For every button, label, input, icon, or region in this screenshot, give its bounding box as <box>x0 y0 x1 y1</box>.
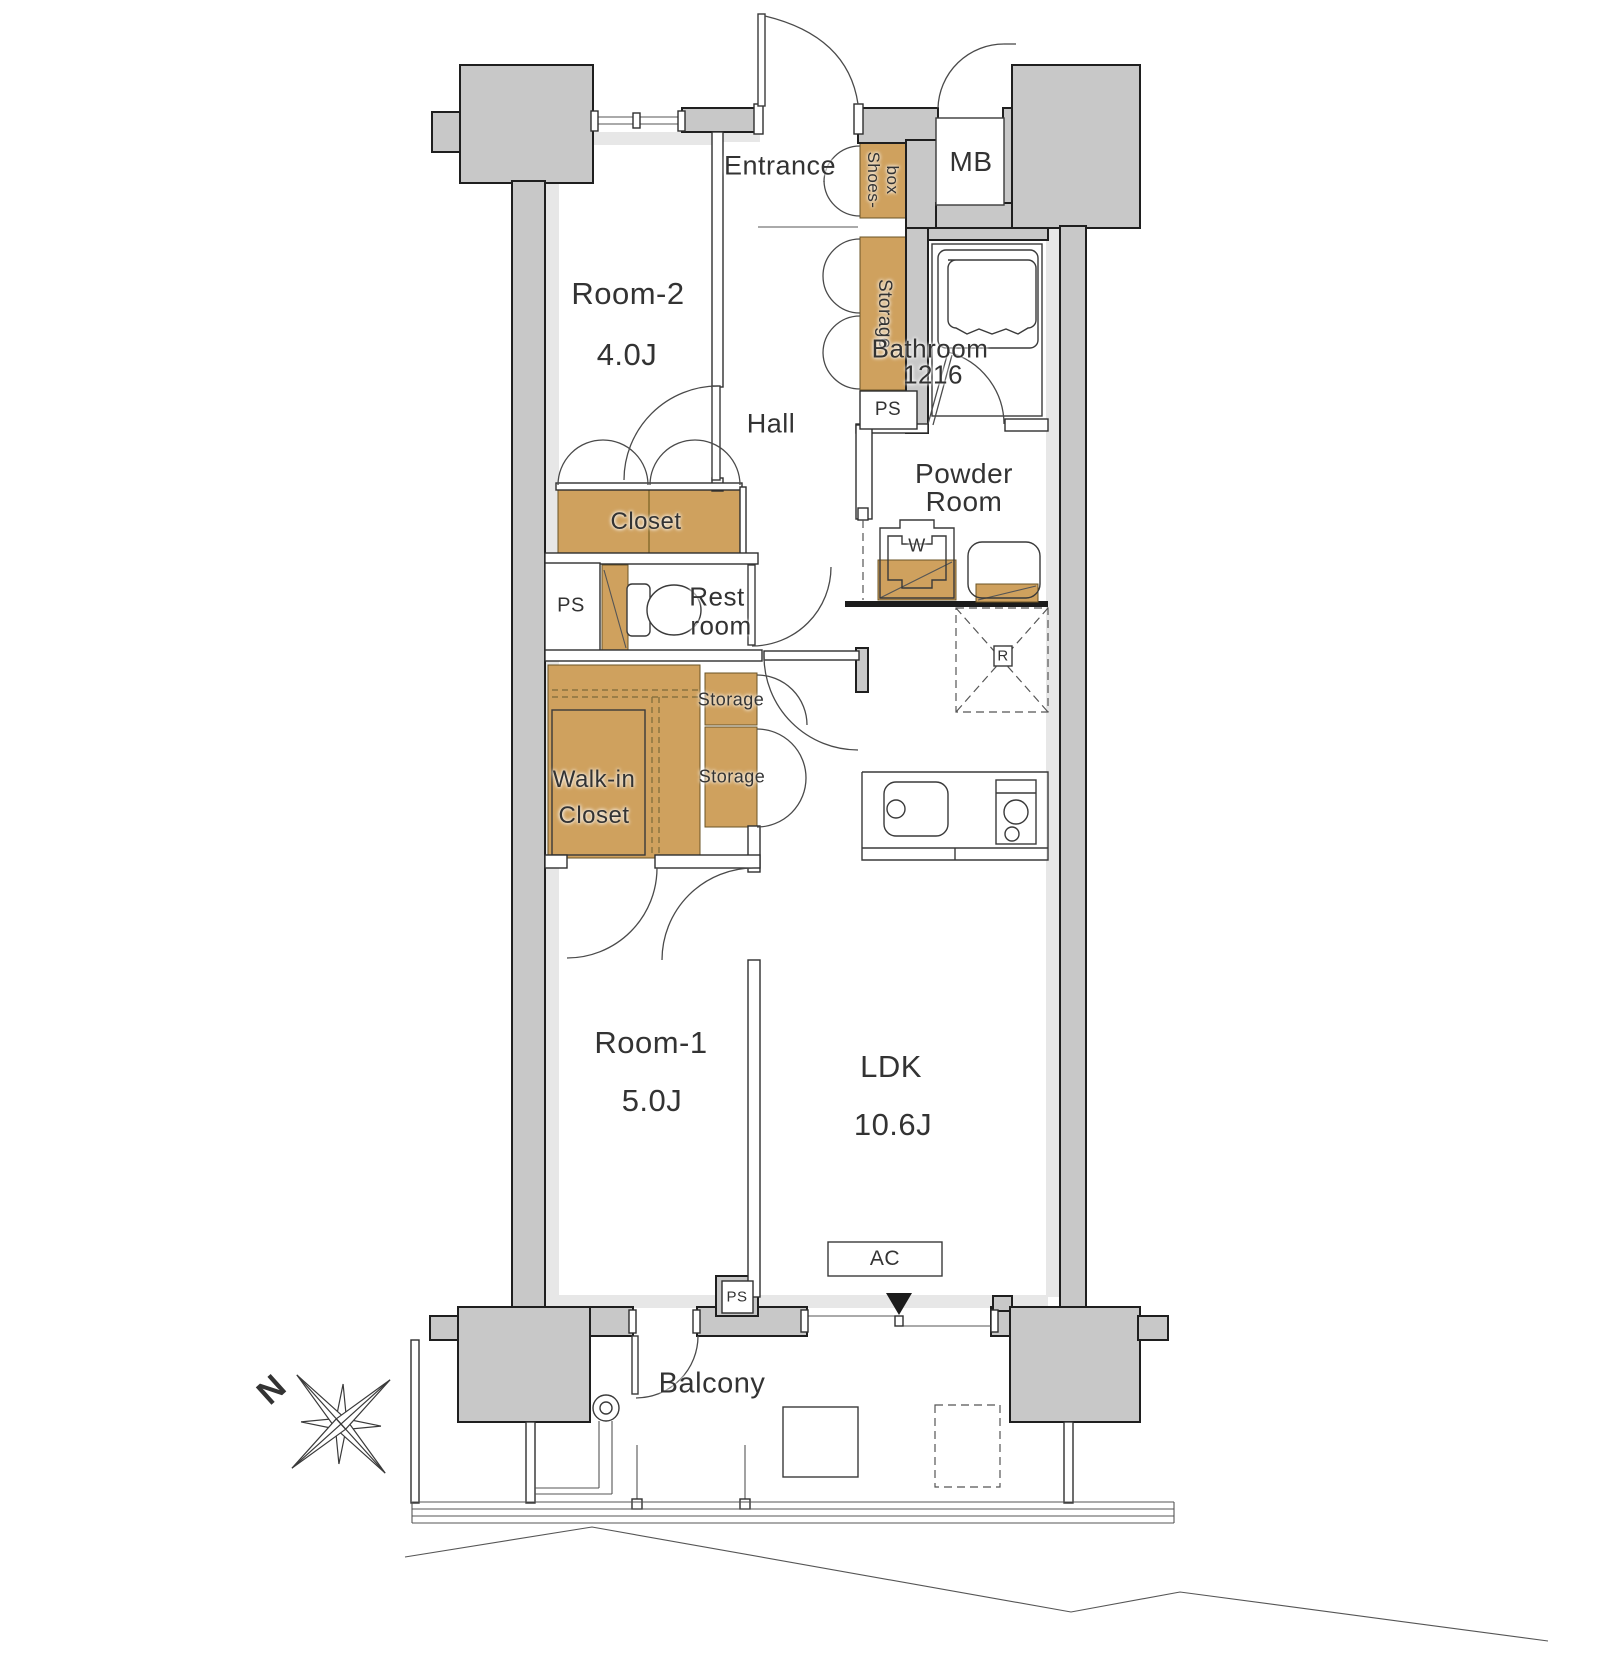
floor-plan-drawing <box>0 0 1600 1660</box>
wic-label-2: Closet <box>558 802 629 830</box>
wall-entry-mb <box>906 140 938 230</box>
pillar-topleft-tab <box>432 112 462 152</box>
wall-left <box>512 181 545 1309</box>
wall-restroom-wic <box>545 650 762 661</box>
wic-label-1: Walk-in <box>553 766 636 794</box>
closet-door-line <box>556 483 742 490</box>
closet-label: Closet <box>610 508 681 536</box>
ldk-door-leaf <box>764 651 859 660</box>
wall-top-a <box>682 108 760 132</box>
pillar-topright <box>1012 65 1140 228</box>
room2-door-leaf <box>712 386 720 480</box>
wall-hall-powder <box>856 425 872 519</box>
ac-label: AC <box>870 1247 900 1271</box>
shoes-box-label-2: box <box>882 166 902 195</box>
wall-room1-ldk <box>748 960 760 1297</box>
entrance-label: Entrance <box>724 151 836 182</box>
room1-label: Room-1 <box>594 1025 707 1061</box>
entrance-door-leaf <box>758 14 765 106</box>
room1-size: 5.0J <box>622 1083 683 1119</box>
compass-icon <box>248 1331 434 1517</box>
pillar-topleft <box>460 65 593 183</box>
balcony-railing <box>412 1502 1174 1523</box>
washer-label: W <box>908 536 926 557</box>
balcony-box-solid <box>783 1407 858 1477</box>
entrance-door-arc <box>765 16 858 104</box>
wall-room2-hall <box>712 132 723 387</box>
balcony-label: Balcony <box>659 1368 766 1401</box>
pillar-bottomleft-arm <box>430 1316 460 1340</box>
balcony-box-dashed <box>935 1405 1000 1487</box>
room2-size: 4.0J <box>597 337 658 373</box>
mb-label: MB <box>950 146 993 178</box>
room2-window <box>591 111 598 131</box>
ldk-size: 10.6J <box>854 1107 932 1143</box>
storage-b-label: Storage <box>699 767 766 788</box>
ps-hall-label: PS <box>875 399 901 421</box>
pillar-bottomright <box>1010 1307 1140 1422</box>
balcony-side-panel <box>411 1340 419 1503</box>
ground-line <box>405 1527 1548 1641</box>
bathroom-size: 1216 <box>903 360 963 391</box>
room2-label: Room-2 <box>571 276 684 312</box>
pillar-bottomright-arm <box>1138 1316 1168 1340</box>
refrigerator-label: R <box>997 648 1008 665</box>
ldk-window <box>801 1310 808 1332</box>
floor-plan: Entrance Shoes- box MB Storage Bathroom … <box>0 0 1600 1660</box>
storage-a-label: Storage <box>698 690 765 711</box>
restroom-label-1: Rest <box>689 582 744 613</box>
shoes-box-label-1: Shoes- <box>863 152 883 209</box>
wall-top-b <box>858 108 938 143</box>
hall-label: Hall <box>747 409 796 440</box>
wall-mb-bottom <box>936 203 1016 230</box>
wall-right <box>1060 226 1086 1309</box>
restroom-label-2: room <box>690 611 751 642</box>
ldk-label: LDK <box>860 1049 922 1085</box>
wall-bath-powder <box>1005 419 1048 431</box>
mb-door-arc <box>938 44 1004 108</box>
ps-left-label: PS <box>557 595 585 618</box>
wall-wic-room1 <box>655 855 760 868</box>
balcony-drain <box>593 1395 619 1421</box>
pillar-bottomleft <box>458 1307 590 1422</box>
ps-bottom-label: PS <box>726 1289 747 1306</box>
powder-room-label-2: Room <box>926 486 1003 518</box>
balcony-door-leaf <box>632 1336 638 1394</box>
